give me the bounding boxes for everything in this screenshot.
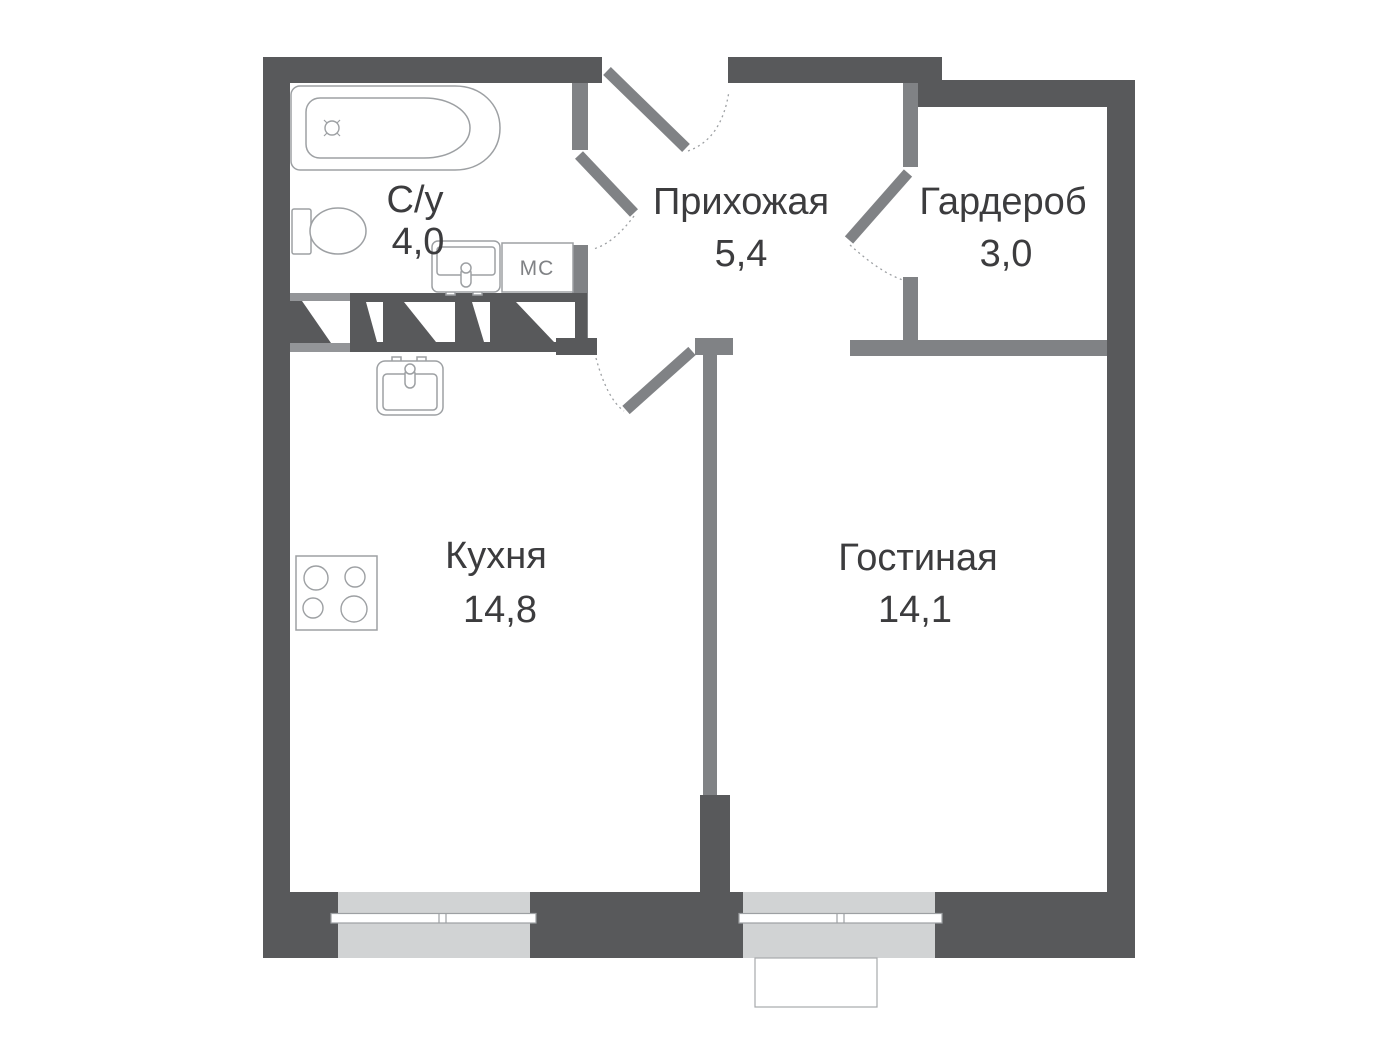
top-wall-middle-section [728, 57, 942, 83]
wardrobe-door-leaf [849, 173, 908, 240]
right-wall [1107, 80, 1135, 958]
living-window-glazing [739, 914, 942, 924]
bathtub-inner [306, 98, 470, 158]
room-area-hallway: 5,4 [715, 233, 768, 275]
floor-plan-svg: МС С/у 4,0 Прихожая 5,4 Гардероб 3,0 [0, 0, 1400, 1050]
wardrobe-door-swing-arc [850, 245, 903, 280]
living-room-window [743, 892, 935, 958]
sink-faucet [405, 364, 415, 374]
room-name-kitchen: Кухня [445, 535, 547, 577]
entrance-door-swing-arc [688, 91, 729, 151]
top-wall-left-section [263, 57, 602, 83]
central-partition-cap [695, 338, 733, 355]
wardrobe-partition-upper [903, 83, 918, 167]
kitchen-sink-icon [377, 357, 443, 415]
room-name-bathroom: С/у [387, 179, 444, 221]
bathtub-icon [291, 86, 500, 170]
hallway-living-wall [850, 340, 1107, 356]
bottom-wall-left-segment [263, 892, 338, 958]
kitchen-window-glazing [331, 914, 536, 924]
washing-machine-label: МС [520, 257, 555, 280]
vent-hatch-triangle [290, 301, 331, 343]
room-name-hallway: Прихожая [653, 181, 829, 223]
room-name-living: Гостиная [838, 537, 998, 579]
central-partition-bottom-block [700, 795, 730, 892]
bathroom-partition-upper [572, 83, 588, 150]
vanity-faucet [461, 263, 471, 273]
wardrobe-top-wall [918, 80, 1135, 107]
room-area-living: 14,1 [878, 589, 952, 631]
kitchen-door-swing-arc [596, 358, 624, 411]
bathroom-door-leaf [579, 155, 634, 213]
wardrobe-partition-lower [903, 277, 918, 340]
balcony-outline-box [755, 958, 877, 1007]
kitchen-window [338, 892, 530, 958]
bottom-wall-middle-segment [530, 892, 743, 958]
vent-corner-block [556, 338, 597, 355]
bottom-wall-right-segment [935, 892, 1135, 958]
room-area-kitchen: 14,8 [463, 589, 537, 631]
floor-plan-page: МС С/у 4,0 Прихожая 5,4 Гардероб 3,0 [0, 0, 1400, 1050]
bathroom-door-swing-arc [593, 216, 634, 249]
central-partition-stem [703, 355, 717, 797]
room-name-wardrobe: Гардероб [919, 181, 1086, 223]
vent-strip-bottom [290, 343, 350, 352]
left-wall [263, 57, 290, 958]
washing-machine-box: МС [502, 243, 573, 292]
room-area-wardrobe: 3,0 [980, 233, 1033, 275]
toilet-bowl [310, 208, 366, 254]
toilet-icon [292, 208, 366, 254]
vent-shaft [290, 293, 597, 355]
entrance-door-leaf [607, 71, 686, 148]
vent-strip-top [290, 293, 350, 301]
toilet-tank [292, 209, 311, 254]
room-area-bathroom: 4,0 [392, 221, 445, 263]
kitchen-door-leaf [626, 351, 692, 410]
stove-body [296, 556, 377, 630]
stove-icon [296, 556, 377, 630]
